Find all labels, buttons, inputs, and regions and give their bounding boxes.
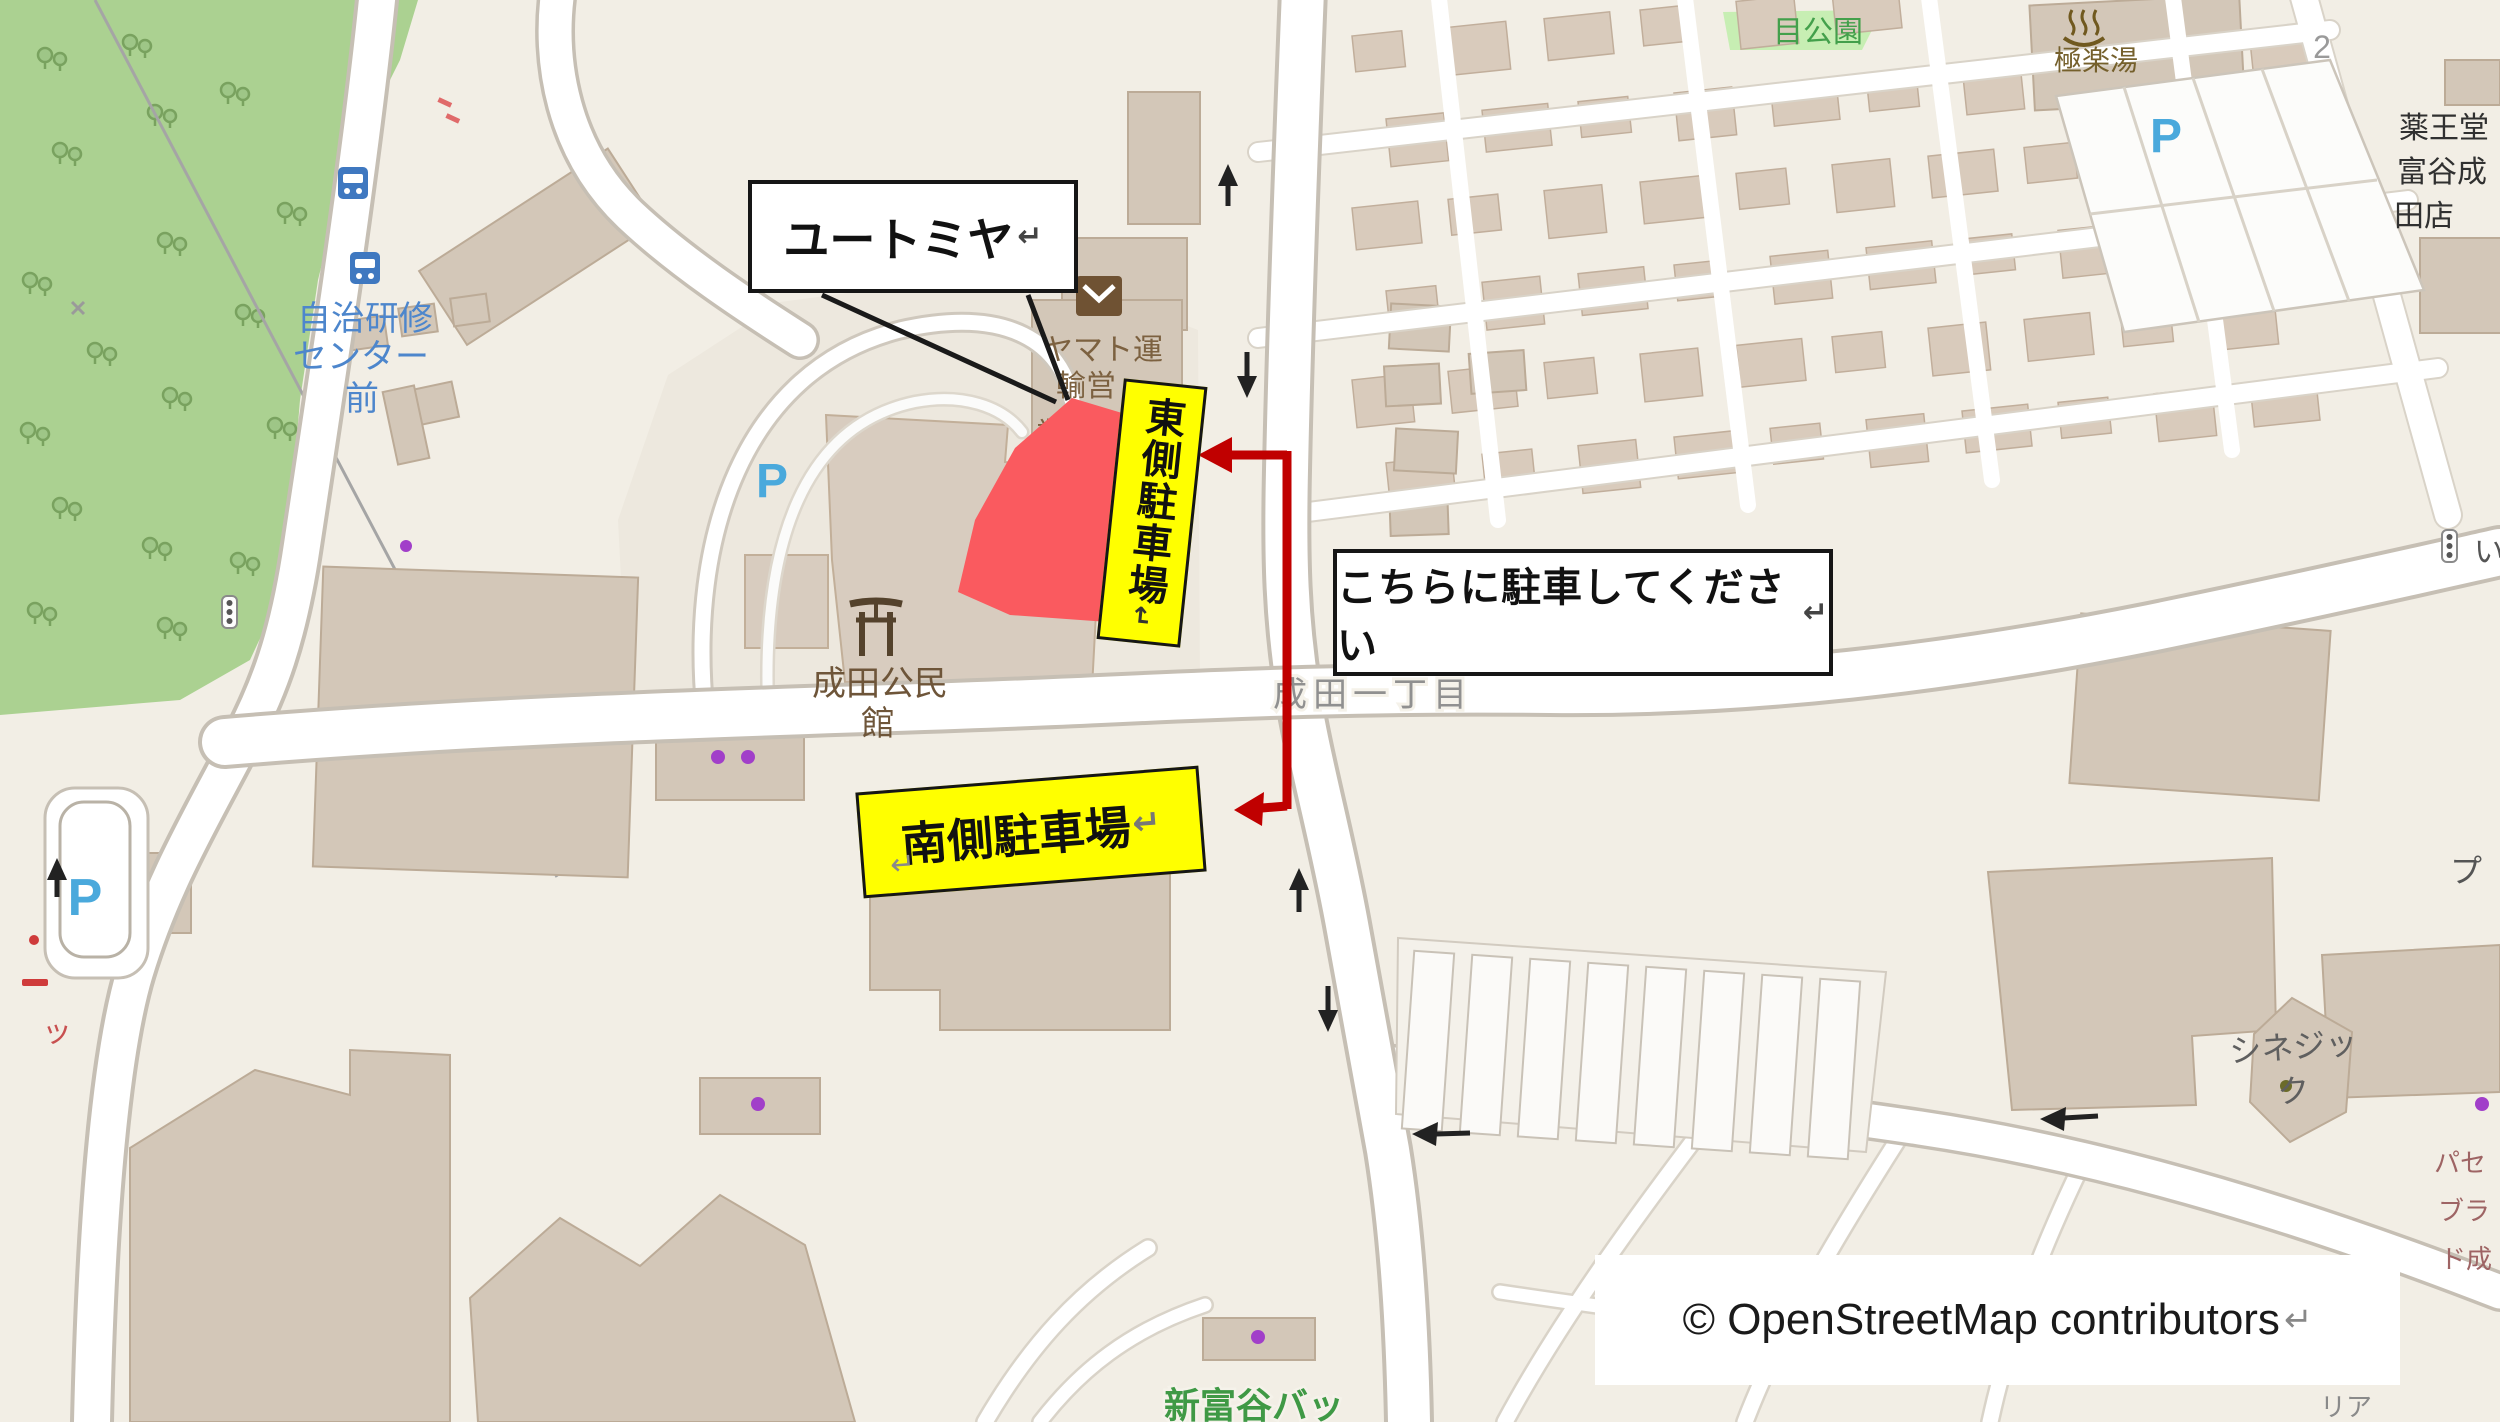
edge-fragment: ッ	[42, 1016, 72, 1049]
edge-fragment: ブラ	[2438, 1196, 2490, 1226]
park-here-instruction-box: こちらに駐車してください↵	[1333, 549, 1833, 676]
yutomiya-callout-text: ユートミヤ	[783, 204, 1013, 270]
base-map: 自治研修 センター 前 目公園 極楽湯 2 薬王堂 富谷成 田店 ヤマト運 輸営…	[0, 0, 2500, 1422]
house-number: 2	[2313, 29, 2331, 65]
edge-fragment: リア	[2320, 1392, 2372, 1422]
svg-text:館: 館	[861, 705, 895, 743]
return-mark: ↵	[1125, 604, 1157, 631]
parking-p: P	[68, 869, 103, 927]
anchor-mark: ↵	[889, 846, 917, 883]
yamato-label: ヤマト運	[1043, 334, 1163, 367]
east-parking-text: 東側駐車場	[1120, 394, 1186, 607]
parking-p: P	[2150, 110, 2182, 163]
bus-stop-icon	[350, 252, 380, 284]
post-office-icon	[1076, 276, 1122, 316]
edge-fragment: い	[2474, 536, 2500, 569]
yutomiya-callout-box: ユートミヤ↵	[748, 180, 1078, 293]
yakuodo-label: 薬王堂	[2399, 112, 2489, 145]
svg-text:センター: センター	[293, 338, 429, 376]
bus-stop-label: 自治研修	[297, 300, 433, 338]
svg-text:前: 前	[345, 380, 379, 418]
svg-text:富谷成: 富谷成	[2397, 156, 2487, 189]
osm-attribution: © OpenStreetMap contributors↵	[1595, 1255, 2400, 1385]
return-mark: ↵	[2284, 1300, 2313, 1340]
park-here-text: こちらに駐車してください	[1337, 555, 1799, 671]
return-mark: ↵	[1131, 802, 1163, 844]
svg-text:田店: 田店	[2394, 200, 2454, 233]
return-mark: ↵	[1017, 219, 1042, 254]
return-mark: ↵	[1803, 595, 1829, 630]
park-label: 目公園	[1773, 16, 1863, 49]
edge-fragment: プ	[2450, 853, 2482, 889]
attribution-text: © OpenStreetMap contributors	[1683, 1295, 2280, 1345]
district-road-label: 成田一丁目	[1273, 676, 1473, 714]
parking-p: P	[756, 455, 788, 508]
batting-center-label: 新富谷バッ	[1164, 1385, 1344, 1422]
traffic-light-icon	[2442, 530, 2457, 562]
map-screenshot: 自治研修 センター 前 目公園 極楽湯 2 薬王堂 富谷成 田店 ヤマト運 輸営…	[0, 0, 2500, 1422]
south-parking-text: 南側駐車場	[899, 791, 1133, 875]
edge-fragment: パセ	[2434, 1148, 2486, 1178]
onsen-label: 極楽湯	[2054, 45, 2138, 76]
parking-slabs	[1396, 938, 1886, 1159]
edge-fragment: ド成	[2440, 1244, 2492, 1274]
traffic-light-icon	[222, 596, 237, 628]
svg-text:ク: ク	[2276, 1072, 2310, 1110]
community-center-label: 成田公民	[812, 665, 948, 703]
bus-stop-icon	[338, 167, 368, 199]
